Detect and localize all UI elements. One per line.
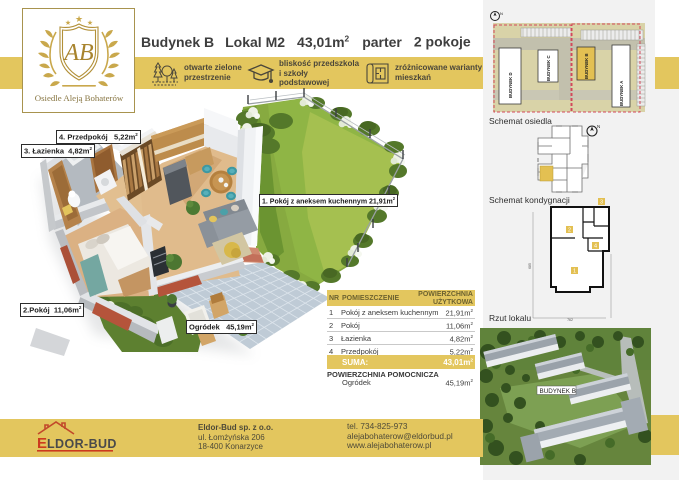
- svg-text:AB: AB: [62, 40, 94, 66]
- svg-text:3: 3: [600, 200, 603, 206]
- svg-text:2: 2: [568, 228, 571, 234]
- svg-text:BUDYNEK D: BUDYNEK D: [508, 72, 513, 98]
- svg-text:★: ★: [87, 19, 93, 27]
- svg-text:E: E: [37, 435, 47, 452]
- svg-text:LDOR-BUD: LDOR-BUD: [47, 437, 116, 451]
- svg-text:★: ★: [65, 19, 71, 27]
- svg-text:BUDYNEK B: BUDYNEK B: [584, 53, 589, 79]
- svg-text:BUDYNEK B: BUDYNEK B: [540, 388, 576, 395]
- svg-text:Osiedle Aleją Bohaterów: Osiedle Aleją Bohaterów: [35, 93, 124, 103]
- svg-text:BUDYNEK A: BUDYNEK A: [619, 81, 624, 106]
- svg-text:N: N: [500, 11, 503, 16]
- svg-text:1: 1: [573, 269, 576, 275]
- svg-text:4: 4: [594, 244, 597, 250]
- svg-text:685: 685: [528, 263, 532, 269]
- svg-text:BUDYNEK C: BUDYNEK C: [546, 55, 551, 81]
- svg-text:N: N: [597, 124, 600, 129]
- svg-text:762: 762: [567, 318, 573, 322]
- svg-text:★: ★: [75, 14, 83, 24]
